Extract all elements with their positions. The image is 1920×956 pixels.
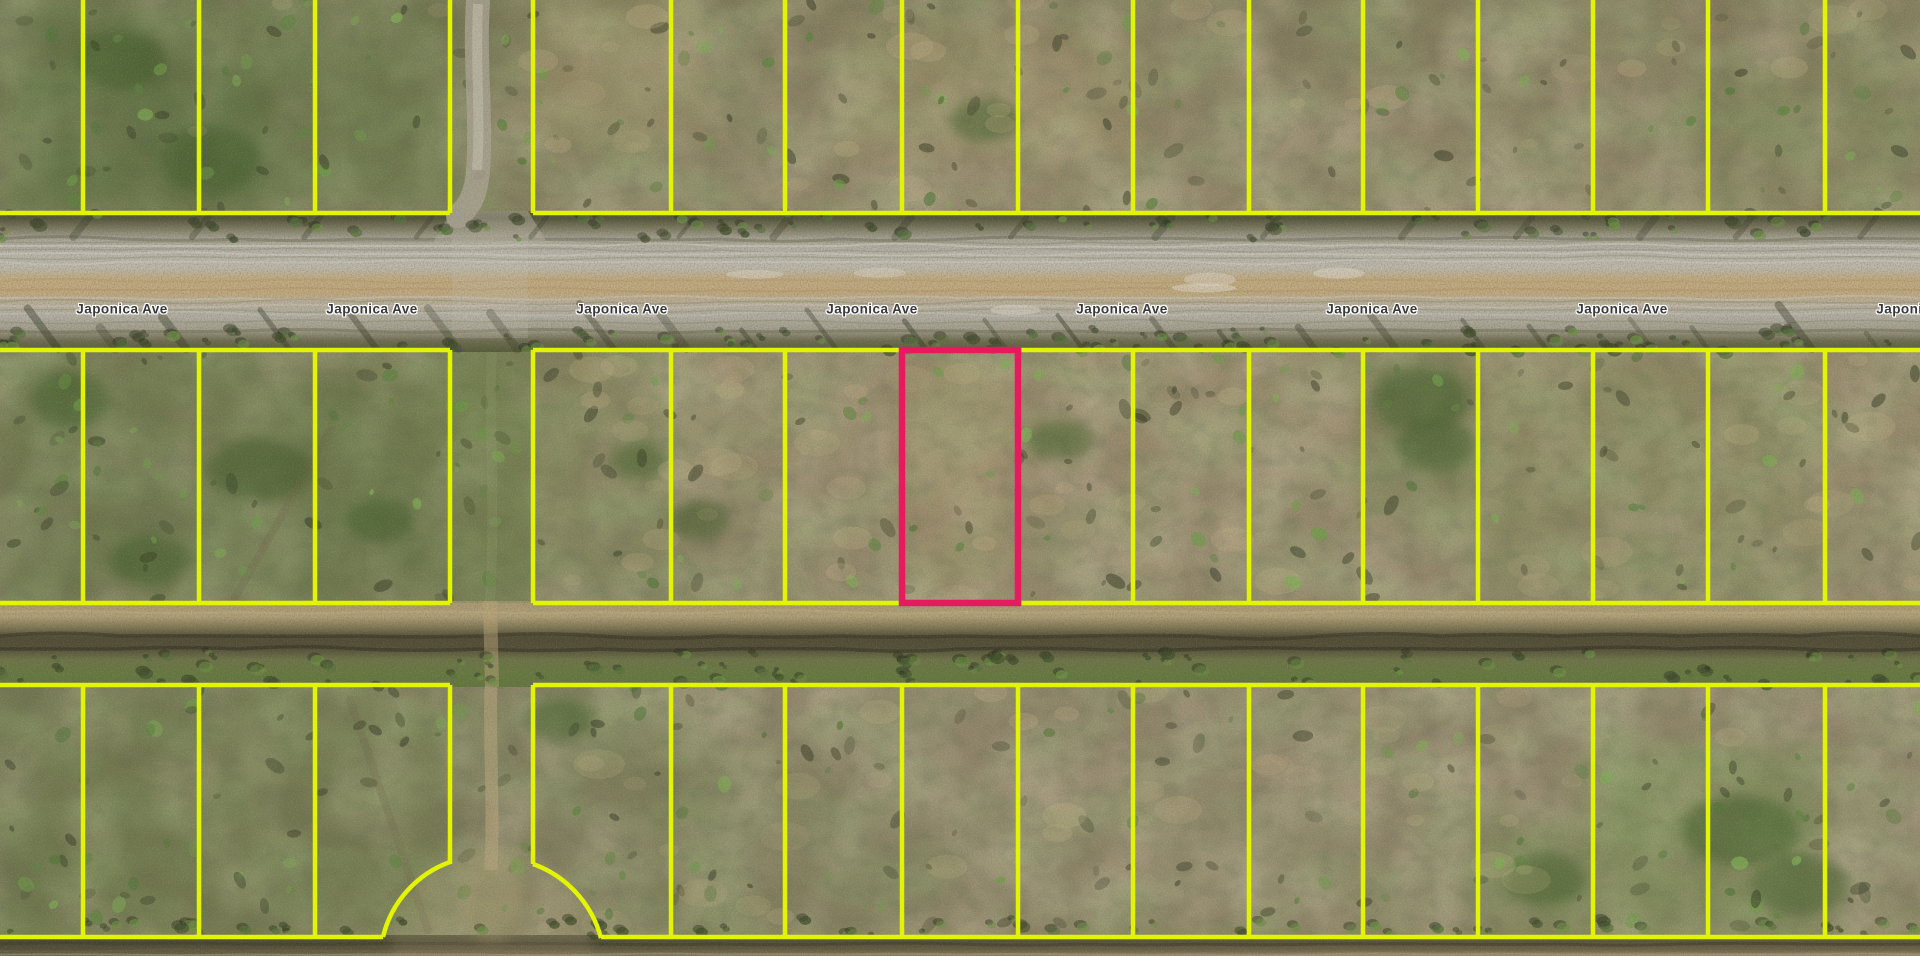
satellite-map[interactable]: Japonica AveJaponica AveJaponica AveJapo… [0, 0, 1920, 956]
imagery-grain-layer [0, 0, 1920, 956]
